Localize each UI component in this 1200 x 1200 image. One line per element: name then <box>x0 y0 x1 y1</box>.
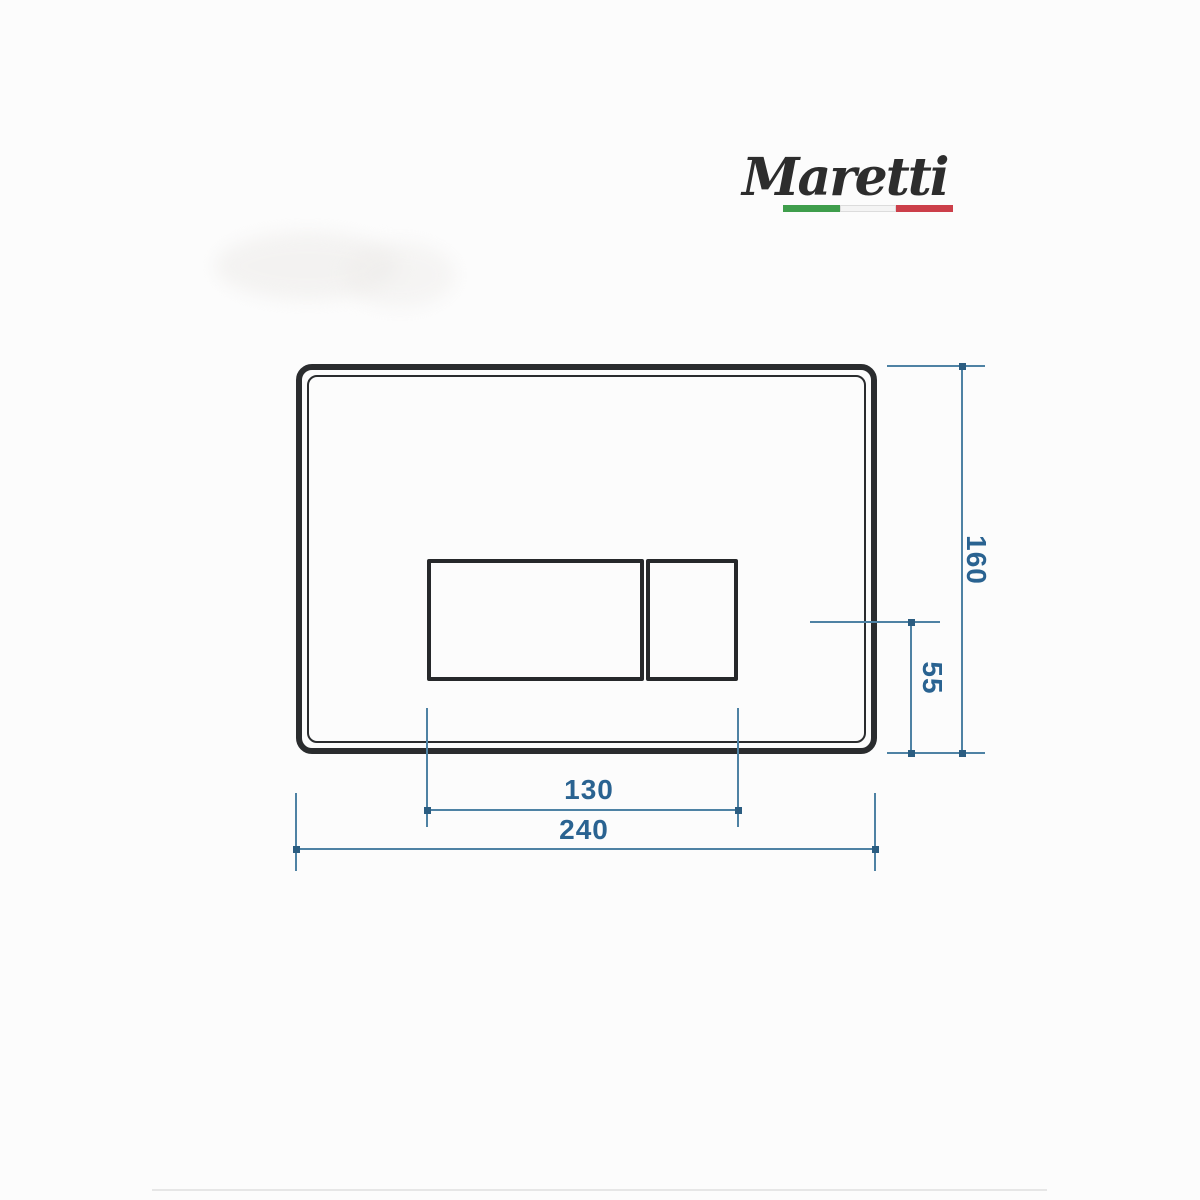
dimension-label-offset: 55 <box>916 661 948 694</box>
dimension-dot <box>908 750 915 757</box>
dimension-label-plate-width: 240 <box>559 814 609 846</box>
page-bottom-rule <box>152 1189 1047 1191</box>
dimension-dot <box>424 807 431 814</box>
dimension-dot <box>293 846 300 853</box>
dimension-dot <box>872 846 879 853</box>
dimension-dot <box>735 807 742 814</box>
dimension-dot <box>959 363 966 370</box>
dimension-lines <box>0 0 1200 1200</box>
dimension-dot <box>908 619 915 626</box>
dimension-dot <box>959 750 966 757</box>
dimension-label-height: 160 <box>960 535 992 585</box>
dimension-label-button-width: 130 <box>564 774 614 806</box>
drawing-canvas: Maretti 160 55 <box>0 0 1200 1200</box>
